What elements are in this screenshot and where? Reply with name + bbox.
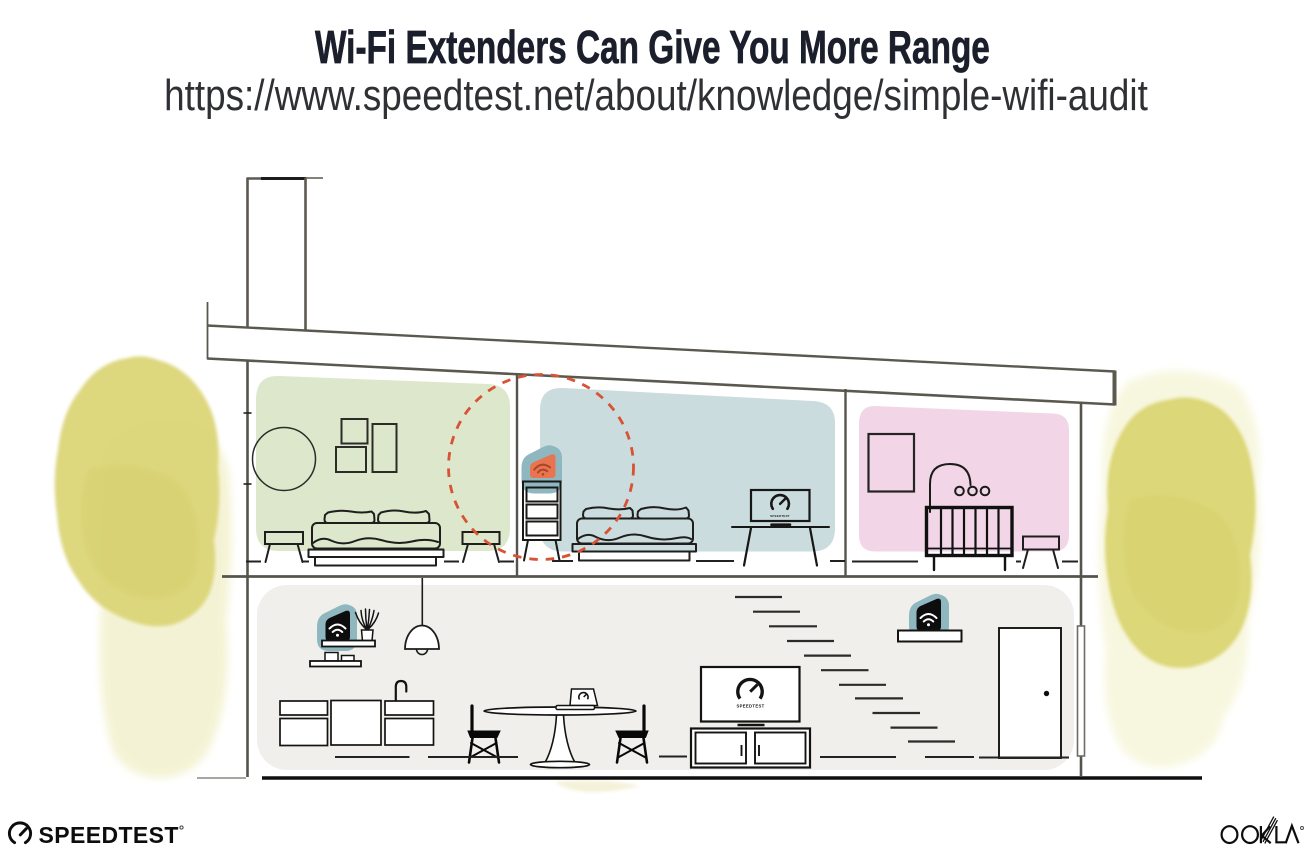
svg-text:SPEEDTEST: SPEEDTEST xyxy=(770,514,790,518)
svg-text:SPEEDTEST: SPEEDTEST xyxy=(736,704,764,709)
svg-text:SPEEDTEST: SPEEDTEST xyxy=(39,822,179,848)
